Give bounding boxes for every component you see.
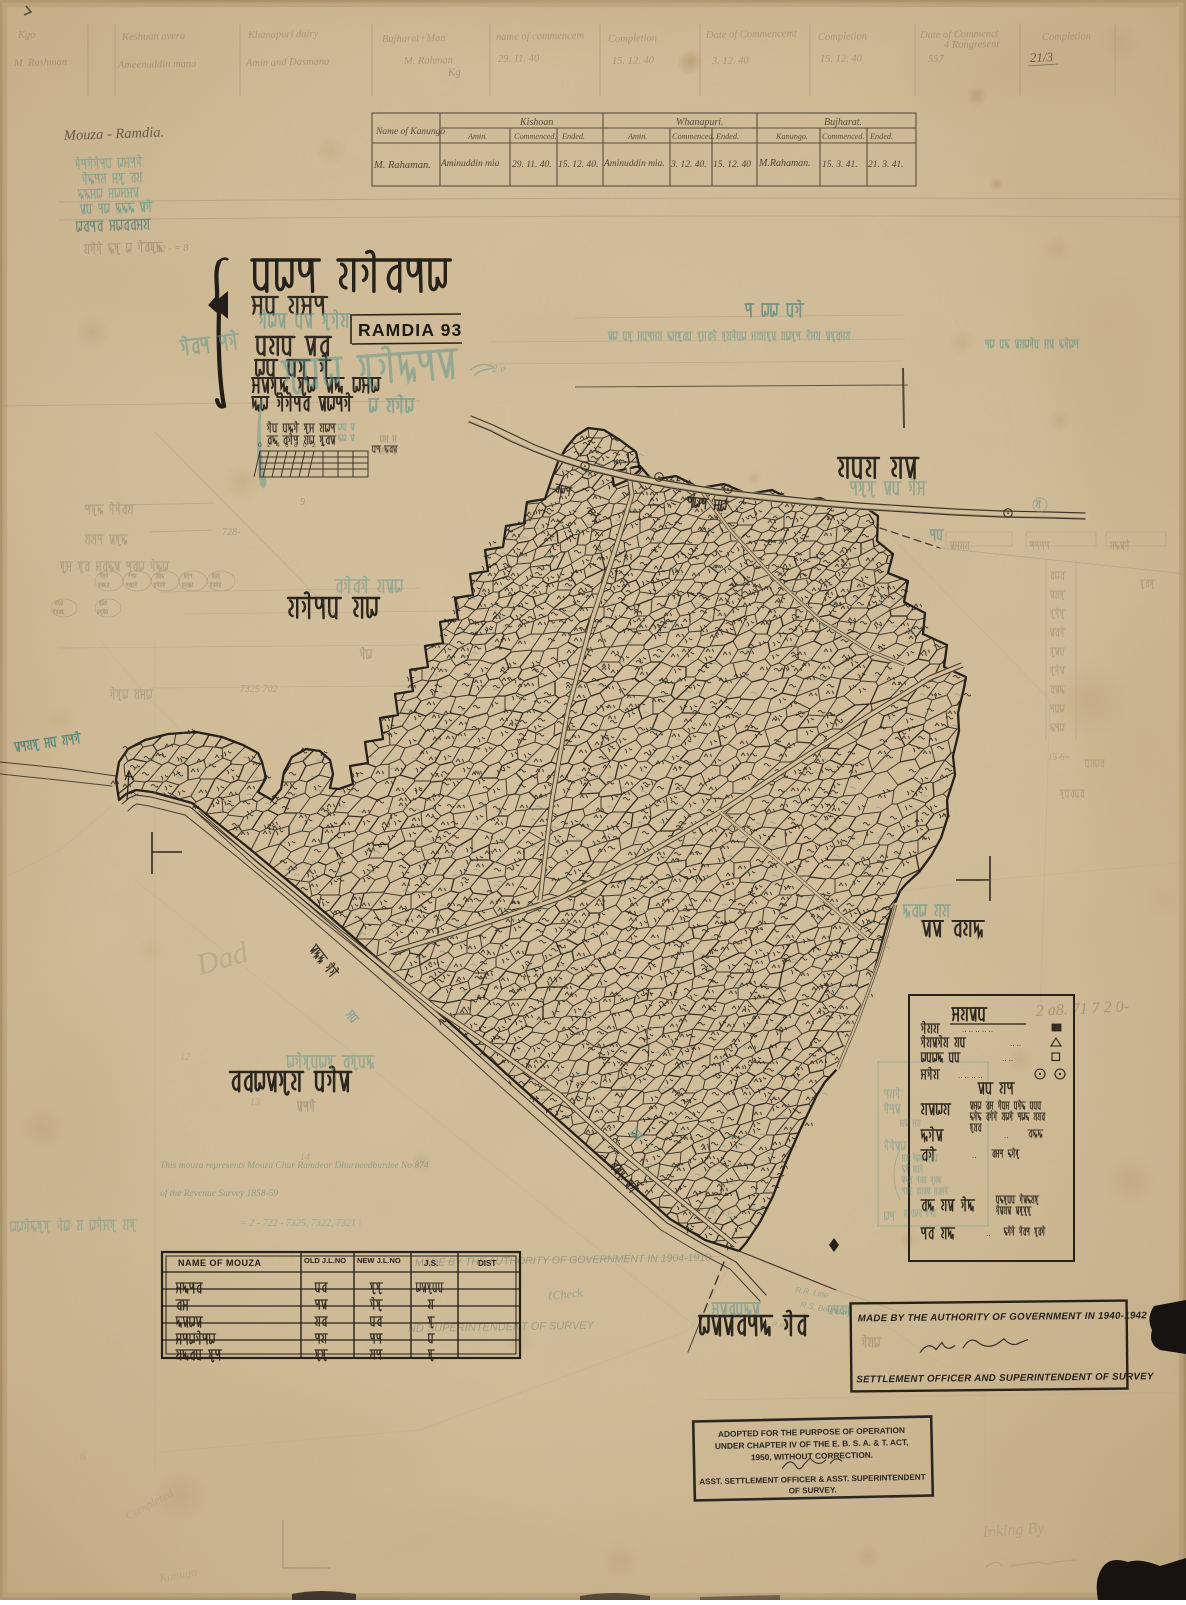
svg-text:NAME OF MOUZA: NAME OF MOUZA [178,1258,262,1268]
svg-text:of the Revenue Survey 1858-59: of the Revenue Survey 1858-59 [160,1188,278,1199]
svg-text:29. 11. 40.: 29. 11. 40. [512,160,552,170]
svg-text:Amin.: Amin. [627,132,647,141]
svg-text:Aminuddin mia: Aminuddin mia [440,159,500,169]
svg-text:NEW J.L.NO: NEW J.L.NO [357,1256,401,1265]
svg-text:- 22 - = 8: - 22 - = 8 [150,243,189,255]
svg-text:J.S.: J.S. [424,1259,438,1268]
svg-text:DIST: DIST [478,1259,496,1268]
svg-text:This mouza represents Mouza Ch: This mouza represents Mouza Char Ramdear… [160,1161,429,1171]
svg-text:15. 12. 40: 15. 12. 40 [612,55,655,67]
svg-text:Amin.: Amin. [467,132,487,141]
svg-text:Bujharat.: Bujharat. [824,117,862,128]
svg-text:2 e: 2 e [492,363,505,375]
svg-text:15. 12. 40.: 15. 12. 40. [558,160,598,170]
svg-text:.. ..: .. .. [1002,1054,1013,1063]
svg-text:= 2 - 722 - 7325, 7322, 7321 |: = 2 - 722 - 7325, 7322, 7321 | [240,1218,361,1229]
svg-text:3. 12. 40.: 3. 12. 40. [670,160,707,170]
svg-text:6: 6 [285,442,289,449]
svg-text:15. 12. 40: 15. 12. 40 [713,160,751,170]
svg-text:12: 12 [180,1052,190,1063]
svg-text:OF SURVEY.: OF SURVEY. [789,1485,837,1495]
svg-text:0: 0 [258,442,262,449]
svg-text:Kishoan: Kishoan [519,117,553,128]
svg-text:..: .. [986,1229,990,1238]
svg-text:2: 2 [312,442,316,449]
svg-text:..: .. [1004,1131,1008,1140]
svg-text:557: 557 [928,54,945,65]
svg-text:Aminuddin mia.: Aminuddin mia. [603,159,665,169]
svg-text:Completion: Completion [1042,31,1091,43]
svg-text:Kgo: Kgo [17,30,36,41]
svg-text:Ended.: Ended. [715,132,739,141]
svg-text:4: 4 [276,442,280,449]
svg-text:Bujharat+Man: Bujharat+Man [382,33,446,45]
svg-text:name of commencem: name of commencem [496,30,585,43]
svg-text:Ended.: Ended. [561,132,585,141]
svg-text:RAMDIA 93: RAMDIA 93 [358,320,462,340]
svg-text:Completion: Completion [818,31,867,43]
svg-text:Khanapuri dairy: Khanapuri dairy [247,29,319,41]
svg-text:29. 11. 40: 29. 11. 40 [498,53,540,65]
svg-text:Keshuan avera: Keshuan avera [121,31,185,43]
svg-text:Whanapuri.: Whanapuri. [676,117,724,128]
svg-text:15. 3. 41.: 15. 3. 41. [822,160,858,170]
svg-text:Commenced.: Commenced. [822,132,865,141]
svg-text:Date of Commencemt: Date of Commencemt [705,28,798,41]
svg-text:21/3: 21/3 [1030,49,1054,65]
svg-text:Commenced.: Commenced. [672,132,715,141]
svg-text:8: 8 [294,442,298,449]
svg-text:Kanungo.: Kanungo. [775,132,808,141]
svg-text:Ended.: Ended. [869,132,893,141]
svg-text:M.Rahaman.: M.Rahaman. [758,158,811,169]
svg-text:M. Rahman: M. Rahman [403,55,453,67]
svg-text:Ameenuddin mana: Ameenuddin mana [117,59,197,71]
svg-text:Completion: Completion [608,33,657,45]
svg-text:Commenced.: Commenced. [514,132,557,141]
svg-text:M. Rahaman.: M. Rahaman. [373,160,431,171]
svg-text:15. 12. 40: 15. 12. 40 [820,53,863,65]
svg-text:728-: 728- [222,527,240,538]
svg-text:4: 4 [321,442,325,449]
svg-text:7325 702: 7325 702 [240,684,278,695]
svg-text:2: 2 [267,442,271,449]
svg-text:9: 9 [300,497,305,508]
svg-text:..: .. [972,1151,976,1160]
svg-text:6: 6 [80,1449,86,1463]
svg-text:Amin and Dasmana: Amin and Dasmana [245,57,330,69]
svg-text:13: 13 [250,1097,260,1108]
svg-text:OLD J.L.NO: OLD J.L.NO [304,1256,346,1265]
svg-text:21. 3. 41.: 21. 3. 41. [868,160,904,170]
svg-text:.. .. .. ..: .. .. .. .. [958,1071,982,1080]
svg-text:15-6~: 15-6~ [1048,752,1069,762]
svg-text:Kg: Kg [446,66,461,79]
svg-text:.. .. .. .. ..: .. .. .. .. .. [962,1025,993,1034]
svg-text:.. ..: .. .. [1010,1039,1021,1048]
svg-text:0: 0 [303,442,307,449]
svg-text:Name of Kanungo: Name of Kanungo [375,126,445,137]
svg-text:3. 12. 40: 3. 12. 40 [711,55,750,67]
svg-text:4 Rongresent: 4 Rongresent [944,39,1001,51]
svg-text:M. Rushman: M. Rushman [13,57,67,69]
